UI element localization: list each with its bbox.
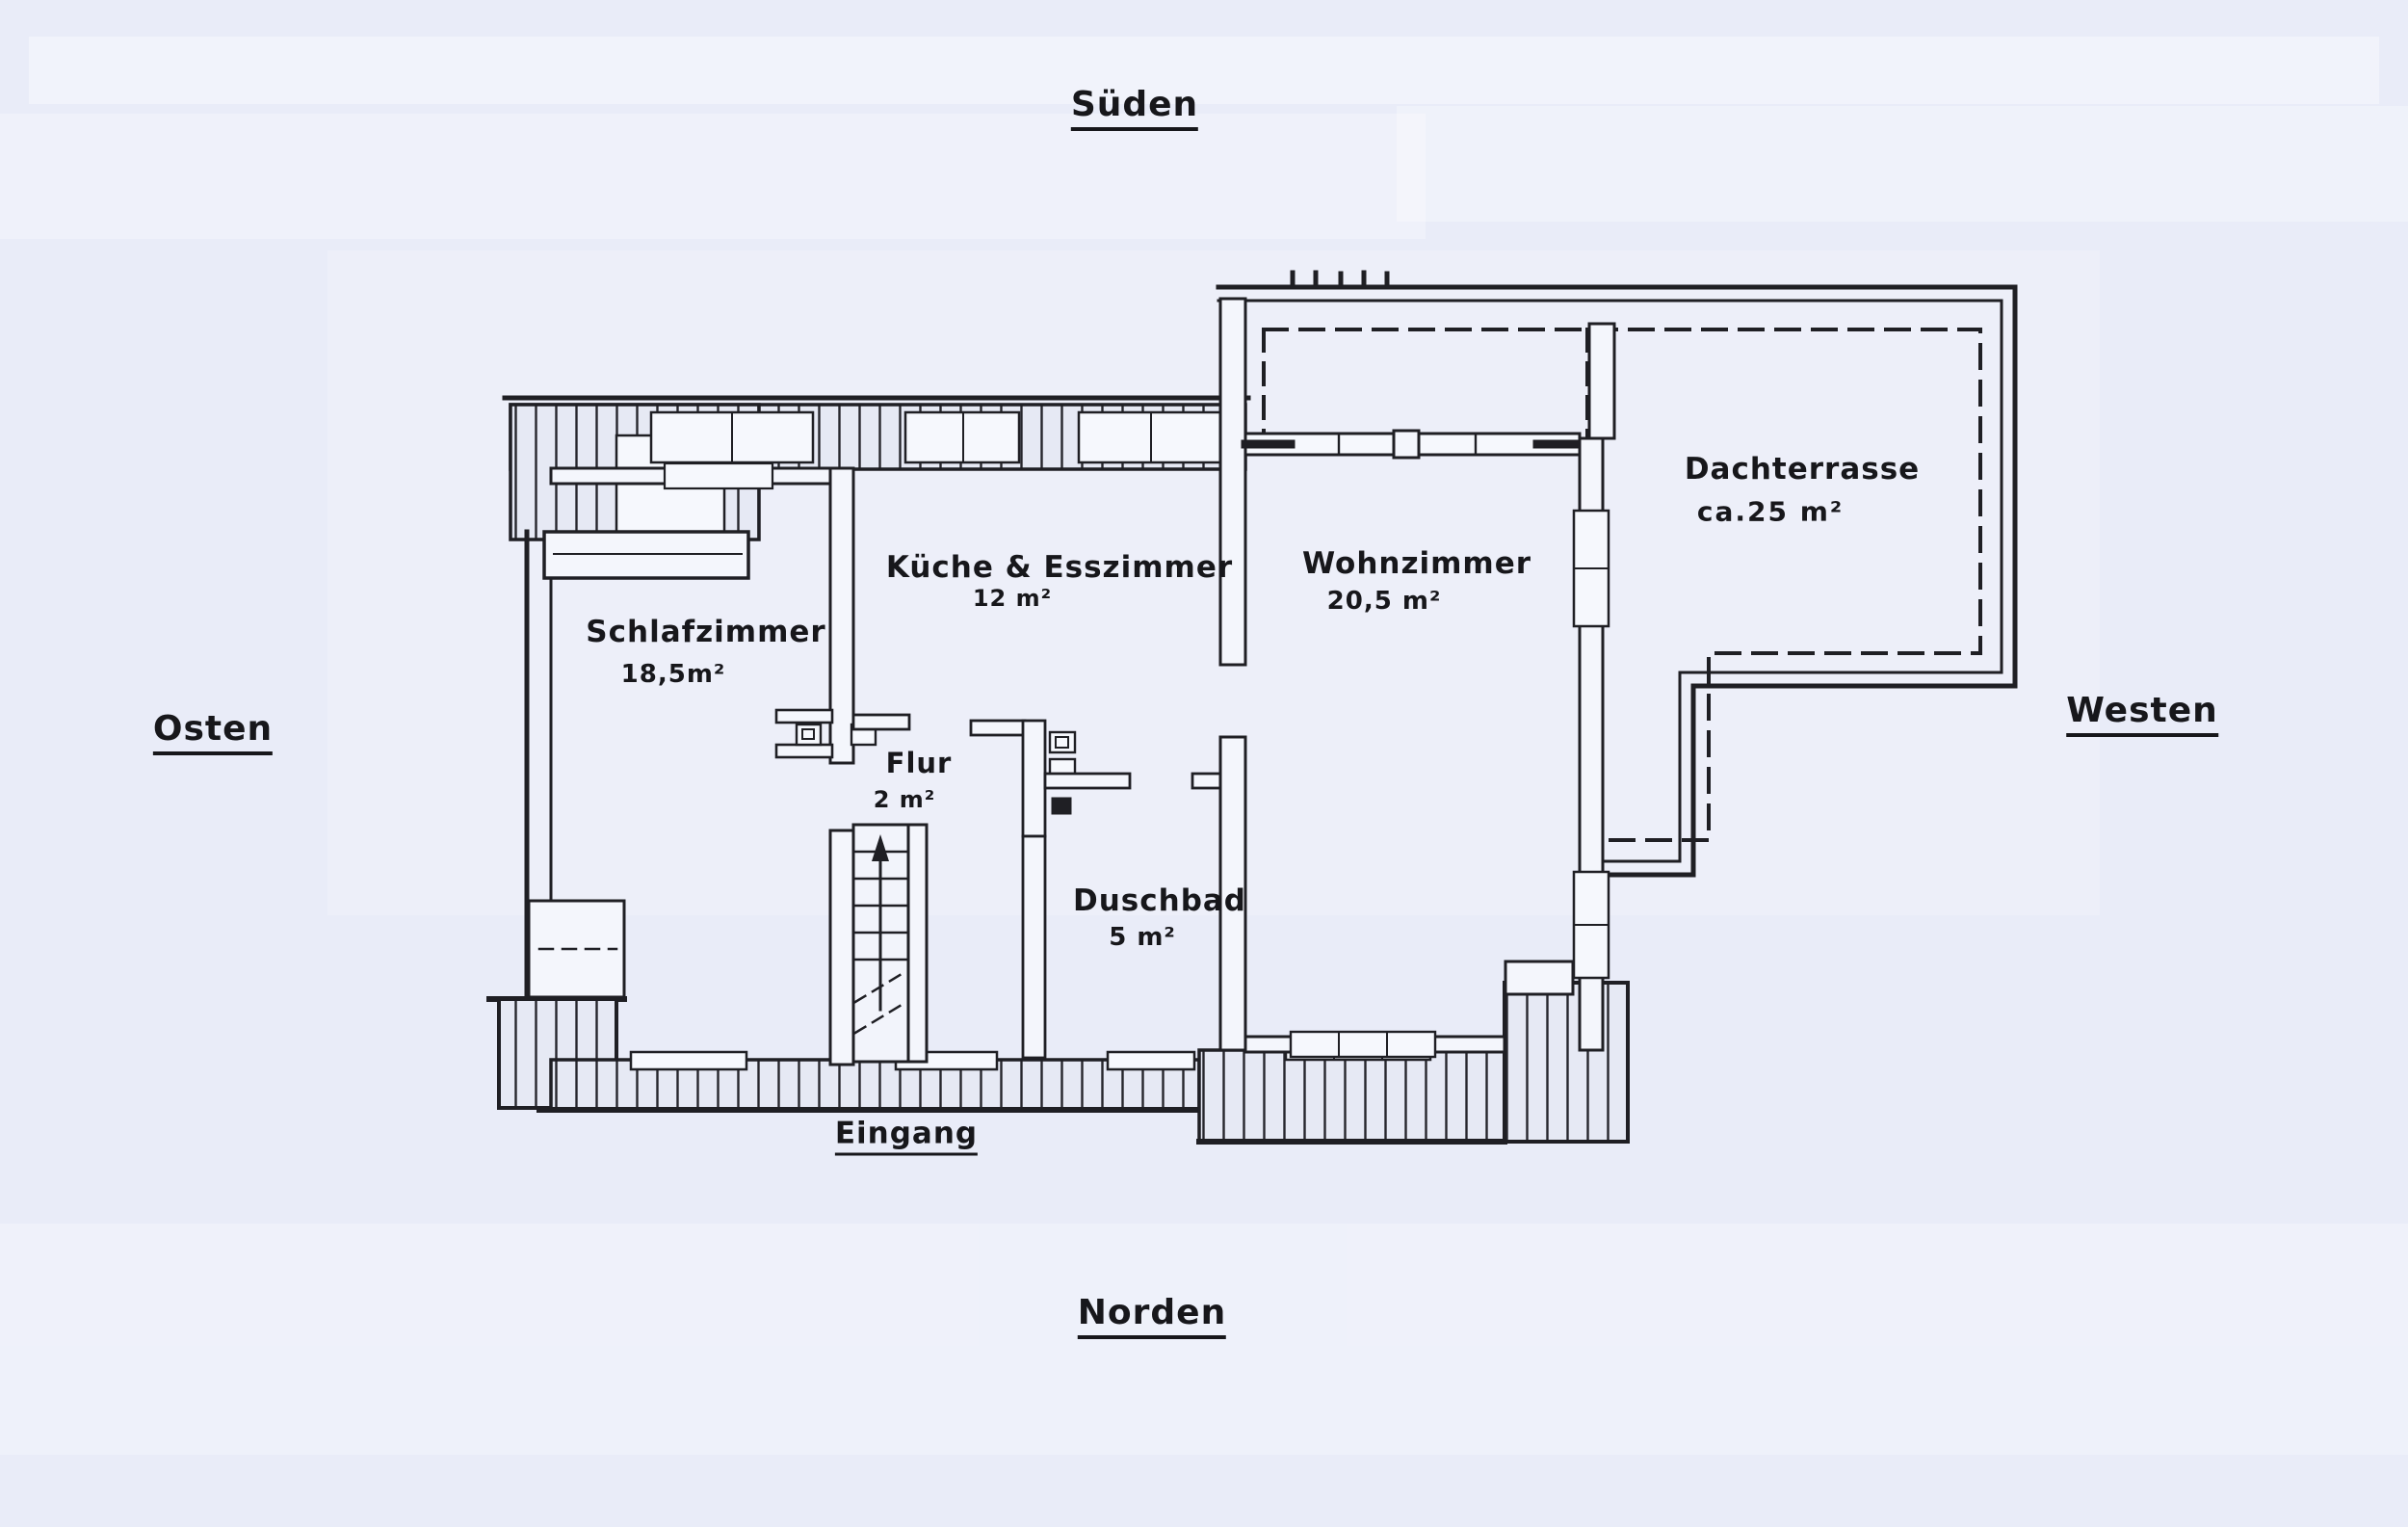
entrance-label: Eingang: [835, 1117, 978, 1156]
room-area-flur: 2 m²: [874, 786, 936, 813]
walls-group: [489, 273, 2015, 1142]
room-label-kueche: Küche & Esszimmer: [886, 550, 1233, 585]
room-area-kueche: 12 m²: [973, 585, 1052, 612]
terrace-railing-dashed: [1264, 329, 1980, 840]
room-area-duschbad: 5 m²: [1109, 923, 1176, 952]
room-label-dachterrasse: Dachterrasse: [1685, 452, 1920, 487]
room-area-dachterrasse: ca.25 m²: [1697, 496, 1844, 528]
schlafzimmer-window: [665, 463, 772, 488]
compass-south-label: Süden: [1071, 85, 1198, 131]
wohnzimmer-south-window: [1291, 1032, 1435, 1057]
room-label-schlafzimmer: Schlafzimmer: [586, 615, 825, 649]
south-windows: [651, 412, 1223, 462]
staircase: [853, 825, 927, 1062]
room-area-schlafzimmer: 18,5m²: [621, 660, 726, 689]
room-area-wohnzimmer: 20,5 m²: [1327, 587, 1442, 616]
compass-east-label: Osten: [153, 709, 273, 755]
room-label-flur: Flur: [886, 747, 953, 779]
compass-west-label: Westen: [2066, 691, 2218, 737]
floorplan-canvas: Süden Osten Westen Norden Eingang Schlaf…: [0, 0, 2408, 1527]
room-label-duschbad: Duschbad: [1073, 883, 1246, 918]
room-label-wohnzimmer: Wohnzimmer: [1302, 546, 1531, 581]
compass-north-label: Norden: [1078, 1293, 1226, 1339]
entrance-porch: [1505, 983, 1628, 1142]
